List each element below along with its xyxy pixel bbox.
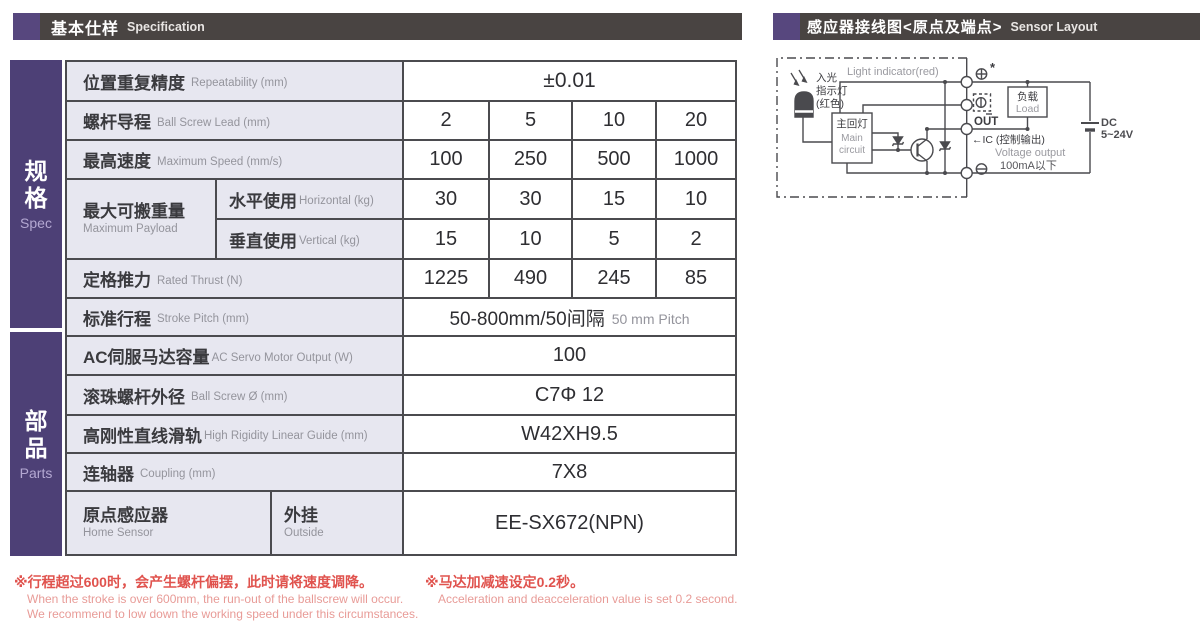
value-horiz-2: 30: [490, 180, 571, 218]
row-home-sensor-mount: 外挂 Outside: [272, 492, 402, 554]
plus-symbol: [976, 69, 986, 79]
main-circuit-zh-label: 主回灯: [836, 118, 868, 130]
header-specification: 基本仕样 Specification: [13, 13, 742, 40]
wire: [840, 82, 967, 113]
sidebar-spec-char: 规: [25, 158, 48, 185]
specification-table: 位置重复精度 Repeatability (mm) ±0.01 螺杆导程 Bal…: [65, 60, 737, 556]
value-horiz-1: 30: [404, 180, 488, 218]
row-repeatability-label: 位置重复精度 Repeatability (mm): [67, 62, 402, 100]
value-horiz-4: 10: [657, 180, 735, 218]
header-sensor-layout-en: Sensor Layout: [1011, 20, 1098, 34]
current-limit-label: 100mA以下: [1000, 160, 1057, 172]
out-label: OUT: [974, 116, 998, 128]
svg-text:指示灯: 指示灯: [816, 84, 848, 97]
svg-text:(红色): (红色): [816, 97, 844, 110]
footnote-stroke-zh: ※行程超过600时，会产生螺杆偏摆，此时请将速度调降。: [14, 572, 373, 592]
value-lead-4: 20: [657, 102, 735, 139]
sidebar-parts-label: Parts: [20, 465, 53, 481]
value-coupling: 7X8: [404, 454, 735, 490]
star-marker: *: [990, 60, 996, 75]
wire: [803, 117, 832, 142]
header-specification-zh: 基本仕样: [51, 15, 119, 39]
purple-accent-square: [773, 13, 800, 40]
value-thrust-4: 85: [657, 260, 735, 297]
value-speed-3: 500: [573, 141, 655, 178]
row-ball-screw-lead-label: 螺杆导程 Ball Screw Lead (mm): [67, 102, 402, 139]
wire: [847, 163, 967, 173]
sensor-wiring-diagram: Light indicator(red) 入光 指示灯 (红色) 主回灯 Mai…: [770, 45, 1200, 215]
header-sensor-layout: 感应器接线图<原点及端点> Sensor Layout: [773, 13, 1200, 40]
sidebar-parts-char: 部: [25, 408, 48, 435]
sidebar-section-spec: 规 格 Spec: [10, 60, 62, 328]
value-vert-3: 5: [573, 220, 655, 258]
value-speed-2: 250: [490, 141, 571, 178]
row-payload-horizontal-label: 水平使用 Horizontal (kg): [217, 180, 402, 218]
light-indicator-en-label: Light indicator(red): [847, 66, 939, 78]
value-thrust-1: 1225: [404, 260, 488, 297]
row-ball-screw-dia-label: 滚珠螺杆外径 Ball Screw Ø (mm): [67, 376, 402, 414]
zener-diode-icon: [940, 142, 951, 151]
value-vert-2: 10: [490, 220, 571, 258]
ic-output-label: ←IC (控制输出): [972, 133, 1045, 146]
header-specification-en: Specification: [127, 20, 205, 34]
row-home-sensor-label: 原点感应器 Home Sensor: [67, 492, 270, 554]
value-stroke: 50-800mm/50间隔 50 mm Pitch: [404, 299, 735, 335]
light-indicator-zh-label: 入光: [816, 71, 837, 84]
wire: [872, 133, 898, 150]
value-home-sensor: EE-SX672(NPN): [404, 492, 735, 554]
sidebar-parts-char: 品: [25, 435, 48, 462]
header-sensor-layout-zh: 感应器接线图<原点及端点>: [807, 16, 1003, 37]
value-vert-4: 2: [657, 220, 735, 258]
footnote-stroke-en1: When the stroke is over 600mm, the run-o…: [27, 592, 403, 606]
zener-diode-icon: [893, 137, 904, 146]
row-rated-thrust-label: 定格推力 Rated Thrust (N): [67, 260, 402, 297]
terminal-out: [961, 124, 972, 135]
sidebar-spec-char: 格: [25, 185, 48, 212]
dc-label: DC: [1101, 117, 1117, 129]
sidebar-section-parts: 部 品 Parts: [10, 332, 62, 556]
terminal-unused: [961, 100, 972, 111]
value-speed-4: 1000: [657, 141, 735, 178]
footnote-accel-en: Acceleration and deacceleration value is…: [438, 592, 738, 606]
value-thrust-3: 245: [573, 260, 655, 297]
svg-text:5~24V: 5~24V: [1101, 129, 1134, 141]
load-zh-label: 负载: [1017, 90, 1039, 103]
voltage-output-label: Voltage output: [995, 147, 1065, 159]
row-max-payload-label: 最大可搬重量 Maximum Payload: [67, 180, 215, 258]
terminal-plus: [961, 77, 972, 88]
value-vert-1: 15: [404, 220, 488, 258]
light-arrows-icon: [791, 70, 808, 86]
row-linear-guide-label: 高刚性直线滑轨 High Rigidity Linear Guide (mm): [67, 416, 402, 452]
sidebar-spec-label: Spec: [20, 215, 52, 231]
value-lead-2: 5: [490, 102, 571, 139]
svg-text:Load: Load: [1016, 103, 1040, 115]
value-repeatability: ±0.01: [404, 62, 735, 100]
value-linear-guide: W42XH9.5: [404, 416, 735, 452]
unused-terminal-symbol: [974, 94, 993, 114]
value-servo-output: 100: [404, 337, 735, 374]
led-icon: [795, 92, 813, 117]
footnote-stroke-en2: We recommend to low down the working spe…: [27, 607, 418, 621]
value-horiz-3: 15: [573, 180, 655, 218]
row-payload-vertical-label: 垂直使用 Vertical (kg): [217, 220, 402, 258]
row-servo-output-label: AC伺服马达容量 AC Servo Motor Output (W): [67, 337, 402, 374]
svg-text:circuit: circuit: [839, 145, 865, 156]
row-stroke-label: 标准行程 Stroke Pitch (mm): [67, 299, 402, 335]
row-max-speed-label: 最高速度 Maximum Speed (mm/s): [67, 141, 402, 178]
value-speed-1: 100: [404, 141, 488, 178]
value-thrust-2: 490: [490, 260, 571, 297]
svg-text:Main: Main: [841, 133, 863, 144]
value-ball-screw-dia: C7Φ 12: [404, 376, 735, 414]
purple-accent-square: [13, 13, 40, 40]
terminal-minus: [961, 168, 972, 179]
value-lead-3: 10: [573, 102, 655, 139]
row-coupling-label: 连轴器 Coupling (mm): [67, 454, 402, 490]
wire: [863, 105, 967, 113]
footnote-accel-zh: ※马达加减速设定0.2秒。: [425, 572, 584, 592]
value-lead-1: 2: [404, 102, 488, 139]
